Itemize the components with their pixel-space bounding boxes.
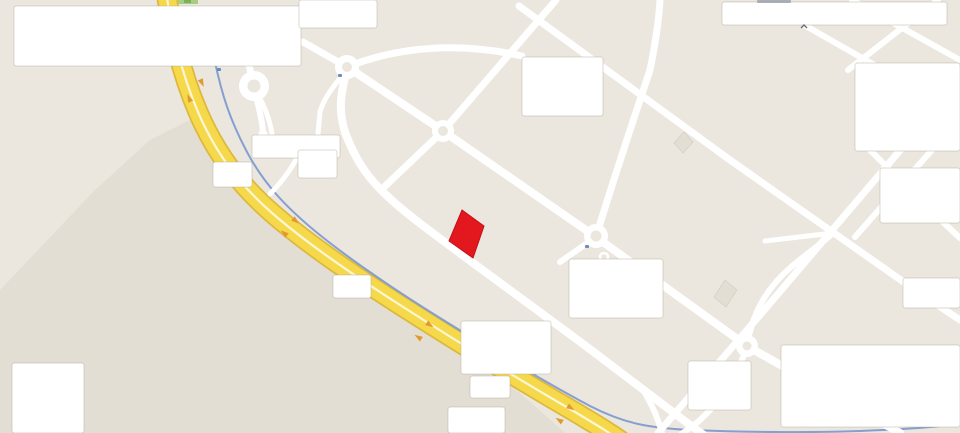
redacted-label-box [14, 6, 301, 66]
redacted-label-box [470, 376, 510, 398]
transit-mark-icon [338, 74, 342, 77]
redacted-label-box [880, 168, 960, 223]
transit-mark-icon [585, 245, 589, 248]
roundabout-d-island [591, 231, 602, 242]
redacted-label-box [722, 2, 947, 25]
redacted-label-box [333, 275, 371, 298]
redacted-label-box [522, 57, 603, 116]
redacted-label-box [781, 345, 960, 427]
redacted-label-box [213, 162, 252, 187]
redacted-label-box [299, 0, 377, 28]
redacted-label-box [855, 63, 960, 151]
redacted-label-box [461, 321, 551, 374]
roundabout-a-island [248, 80, 261, 93]
redacted-label-box [903, 278, 960, 308]
roundabout-c-island [438, 126, 448, 136]
redacted-label-box [448, 407, 505, 433]
map-canvas[interactable] [0, 0, 960, 433]
map-viewport[interactable] [0, 0, 960, 433]
redacted-label-box [688, 361, 751, 410]
tree-fragment [184, 0, 191, 3]
roundabout-b-island [342, 62, 352, 72]
redacted-label-box [298, 150, 337, 178]
transit-mark-icon [217, 68, 221, 71]
roundabout-e-island [743, 342, 752, 351]
redacted-label-box [12, 363, 84, 433]
redacted-label-box [569, 259, 663, 318]
clipped-label-fragment [757, 0, 791, 3]
